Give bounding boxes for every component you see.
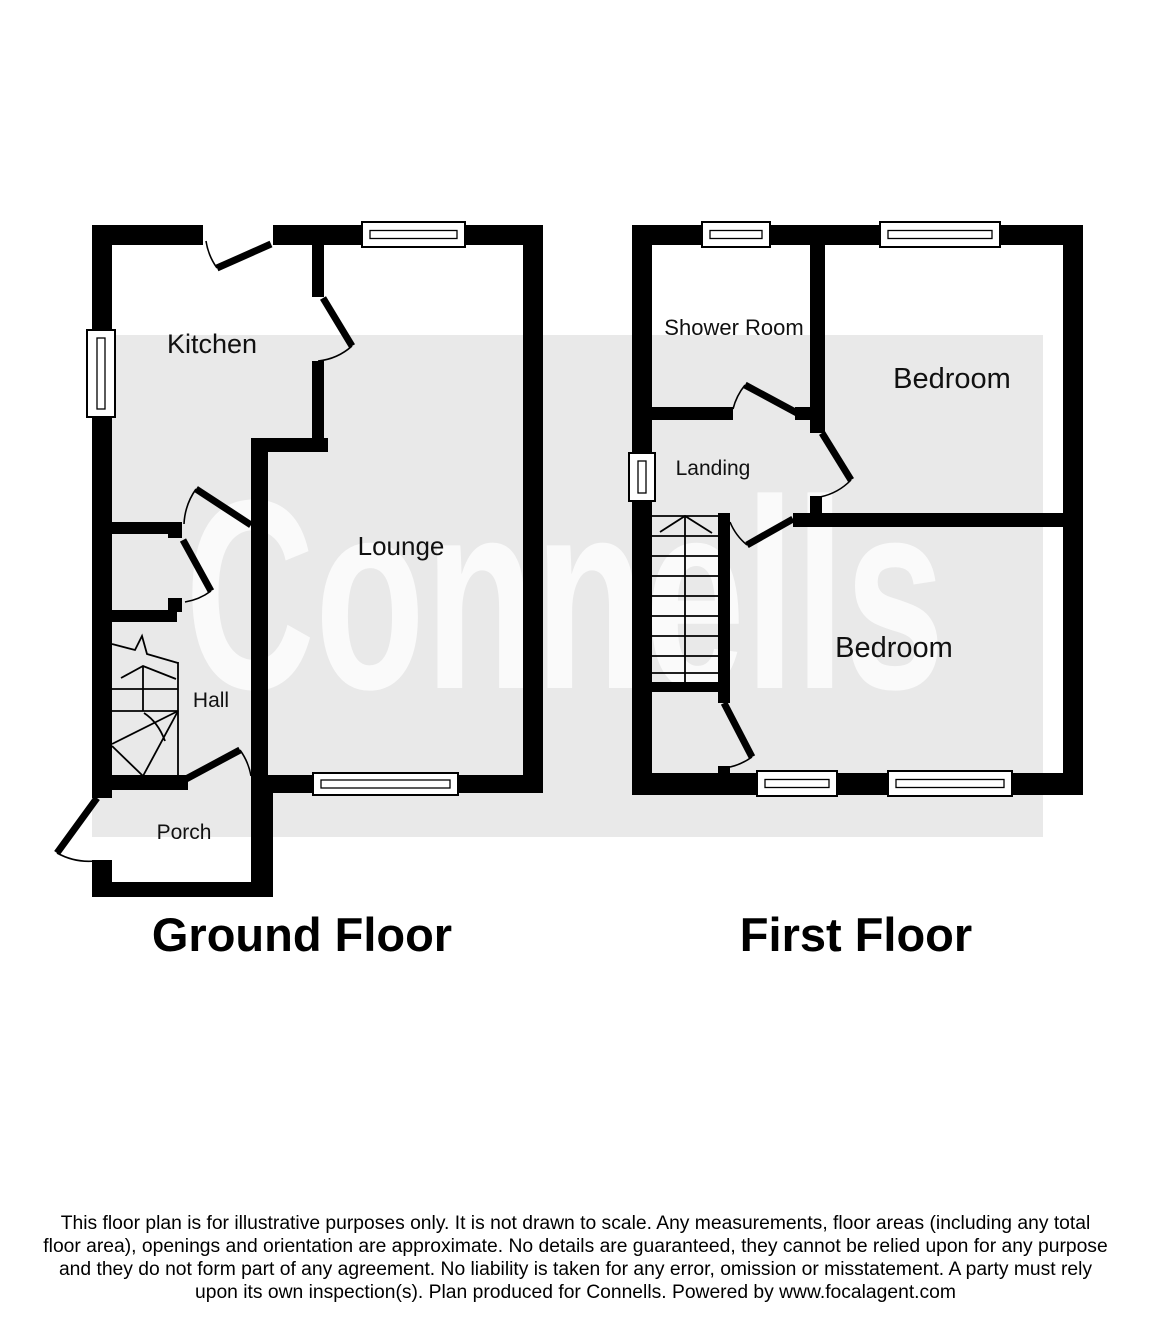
floorplan-canvas: Connells — [0, 0, 1151, 1328]
back-bedroom-window-right — [888, 771, 1012, 796]
back-bedroom-window-left — [757, 771, 837, 796]
watermark-text: Connells — [185, 443, 945, 745]
kitchen-label: Kitchen — [167, 329, 257, 359]
front-bedroom-window — [880, 222, 1000, 247]
shower-room-label: Shower Room — [664, 315, 803, 340]
floorplan-page: Connells — [0, 0, 1151, 1328]
hall-label: Hall — [193, 689, 229, 712]
kitchen-entry-door — [206, 241, 271, 268]
disclaimer-text: This floor plan is for illustrative purp… — [40, 1212, 1111, 1304]
landing-side-window — [629, 453, 655, 501]
lounge-label: Lounge — [358, 531, 445, 561]
kitchen-side-window — [87, 330, 115, 417]
porch-outer-door — [57, 798, 97, 861]
lounge-bottom-window — [313, 773, 458, 795]
porch-label: Porch — [157, 821, 212, 844]
lounge-top-window — [362, 222, 465, 247]
first-floor-title: First Floor — [740, 908, 972, 961]
landing-label: Landing — [676, 457, 751, 480]
back-bedroom-label: Bedroom — [835, 632, 953, 664]
front-bedroom-label: Bedroom — [893, 363, 1011, 395]
shower-room-window — [702, 222, 770, 247]
ground-floor-title: Ground Floor — [152, 908, 452, 961]
